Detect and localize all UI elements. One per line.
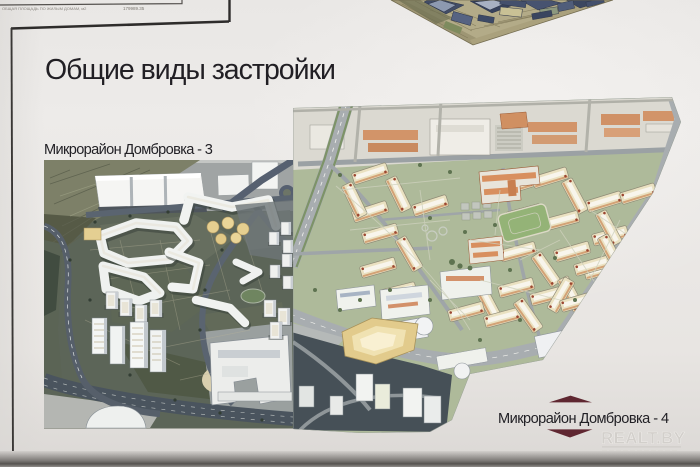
svg-text:ОБЩАЯ ПЛОЩАДЬ ПО ЖИЛЫМ ДОМАМ,: ОБЩАЯ ПЛОЩАДЬ ПО ЖИЛЫМ ДОМАМ, м2 bbox=[2, 6, 87, 11]
svg-text:REALT.BY: REALT.BY bbox=[601, 429, 686, 448]
svg-text:Микрорайон Домбровка - 4: Микрорайон Домбровка - 4 bbox=[498, 411, 669, 427]
svg-text:179989.35: 179989.35 bbox=[123, 6, 145, 11]
svg-text:Общие виды застройки: Общие виды застройки bbox=[45, 54, 335, 86]
svg-text:Микрорайон Домбровка - 3: Микрорайон Домбровка - 3 bbox=[44, 142, 213, 158]
